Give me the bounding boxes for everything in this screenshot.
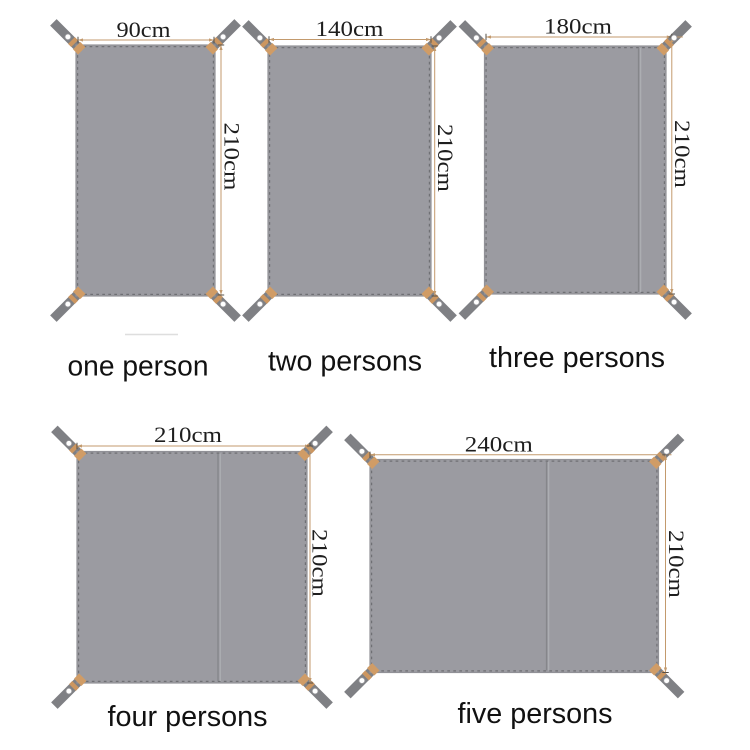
svg-text:240cm: 240cm <box>465 431 533 456</box>
svg-text:210cm: 210cm <box>154 422 222 447</box>
svg-text:five persons: five persons <box>458 698 613 730</box>
svg-text:four persons: four persons <box>108 701 268 733</box>
svg-text:one person: one person <box>68 351 209 383</box>
svg-text:90cm: 90cm <box>117 17 171 42</box>
svg-text:two persons: two persons <box>268 346 422 378</box>
svg-text:140cm: 140cm <box>316 16 384 41</box>
svg-text:three persons: three persons <box>489 342 665 374</box>
svg-text:210cm: 210cm <box>220 123 245 191</box>
svg-text:210cm: 210cm <box>308 529 333 597</box>
svg-text:210cm: 210cm <box>433 124 458 192</box>
svg-text:180cm: 180cm <box>544 14 612 39</box>
svg-text:210cm: 210cm <box>664 530 689 598</box>
svg-text:210cm: 210cm <box>670 120 695 188</box>
